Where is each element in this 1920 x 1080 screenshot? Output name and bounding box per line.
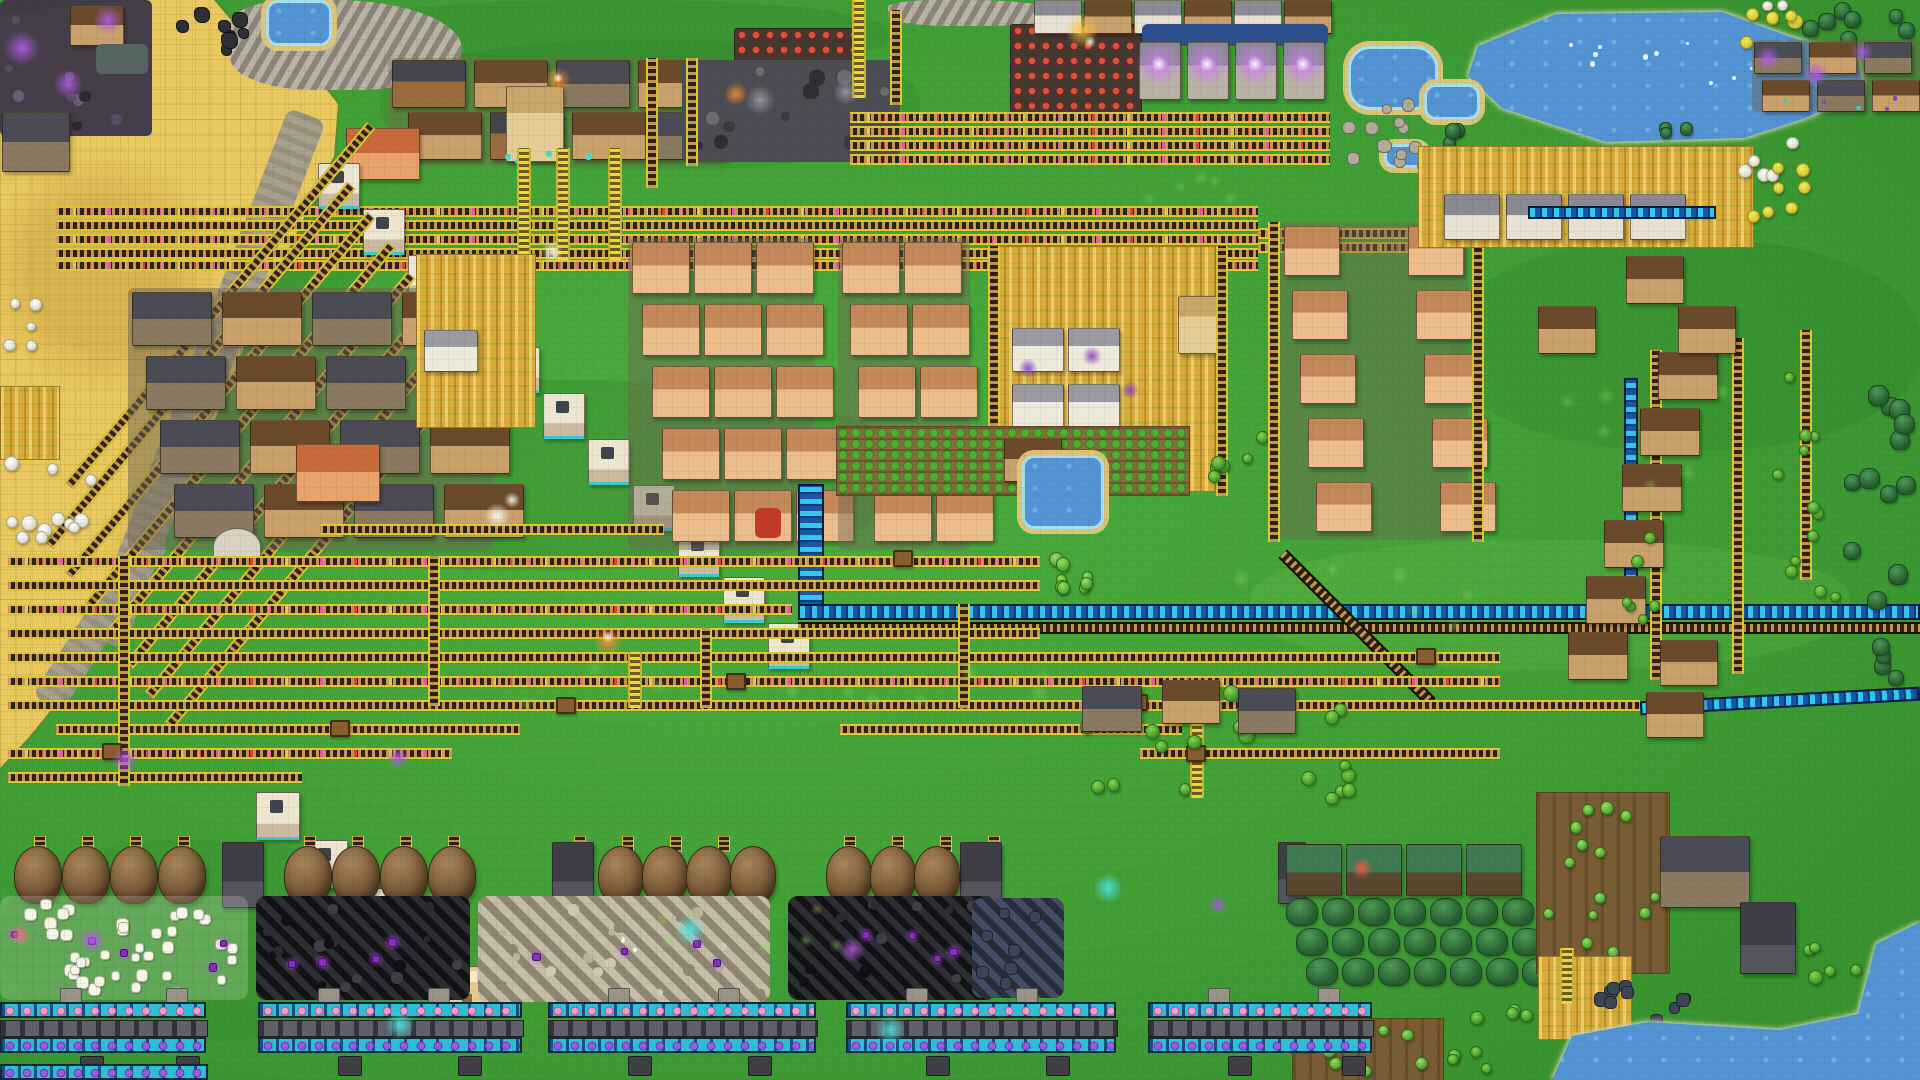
machine[interactable] <box>926 1056 950 1076</box>
tree <box>1056 557 1070 571</box>
tree <box>1450 958 1482 986</box>
house[interactable] <box>642 304 700 356</box>
house[interactable] <box>704 304 762 356</box>
house[interactable] <box>1646 692 1704 738</box>
terrain <box>837 70 851 84</box>
conveyor-belt[interactable] <box>958 604 970 708</box>
conveyor-belt[interactable] <box>517 148 531 260</box>
house[interactable] <box>850 304 908 356</box>
resource-node <box>981 930 993 942</box>
terrain <box>452 960 462 970</box>
house[interactable] <box>1300 354 1356 404</box>
conveyor-belt[interactable] <box>8 748 452 759</box>
tree <box>1798 181 1811 194</box>
item-conveyor[interactable] <box>0 1064 208 1080</box>
storage-building[interactable] <box>543 393 585 439</box>
tree <box>1445 123 1461 139</box>
resource-node <box>227 943 238 954</box>
machine[interactable] <box>338 1056 362 1076</box>
terrain <box>546 151 552 157</box>
house[interactable] <box>132 292 212 346</box>
tree <box>1762 1 1773 12</box>
tree <box>1242 453 1253 464</box>
terrain <box>614 922 624 932</box>
conveyor-belt[interactable] <box>1472 222 1484 542</box>
conveyor-belt[interactable] <box>628 652 642 708</box>
machine[interactable] <box>0 1020 208 1037</box>
chest[interactable] <box>893 550 913 567</box>
terrain <box>784 684 800 700</box>
conveyor-belt[interactable] <box>8 772 302 783</box>
resource-node <box>934 955 941 962</box>
tree <box>1639 907 1651 919</box>
terrain <box>1029 683 1051 705</box>
house[interactable] <box>1416 290 1472 340</box>
house[interactable] <box>312 292 392 346</box>
tree <box>1859 468 1880 489</box>
tree <box>29 298 42 311</box>
terrain <box>836 914 844 922</box>
tree <box>1777 0 1788 11</box>
vfx <box>1093 873 1123 903</box>
tree <box>1520 1009 1534 1023</box>
terrain <box>1714 383 1731 400</box>
tree <box>1502 898 1534 926</box>
pond <box>266 0 332 46</box>
forester-building[interactable] <box>1286 844 1342 896</box>
resource-node <box>209 963 217 971</box>
resource-node <box>388 938 397 947</box>
house[interactable] <box>632 242 690 294</box>
house[interactable] <box>236 356 316 410</box>
vfx <box>1569 43 1573 47</box>
terrain <box>1856 106 1860 110</box>
conveyor-belt[interactable] <box>8 652 1500 663</box>
terrain <box>842 685 858 701</box>
silo[interactable] <box>1178 296 1220 354</box>
house[interactable] <box>766 304 824 356</box>
terrain <box>876 933 887 944</box>
house[interactable] <box>1864 42 1912 74</box>
house[interactable] <box>1762 80 1810 112</box>
house[interactable] <box>1640 408 1700 456</box>
house[interactable] <box>1068 384 1120 428</box>
terrain <box>952 974 961 983</box>
terrain <box>1885 107 1889 111</box>
tree <box>1766 11 1780 25</box>
tree <box>1786 137 1798 149</box>
terrain <box>757 989 765 997</box>
conveyor-belt[interactable] <box>850 126 1330 137</box>
house[interactable] <box>1084 0 1132 34</box>
conveyor-belt[interactable] <box>700 628 712 708</box>
conveyor-belt[interactable] <box>8 700 1640 711</box>
terrain <box>859 966 871 978</box>
house[interactable] <box>874 490 932 542</box>
workshop[interactable] <box>296 444 380 502</box>
resource-node <box>1029 911 1041 923</box>
conveyor-belt[interactable] <box>428 556 440 706</box>
forester-building[interactable] <box>1406 844 1462 896</box>
item-conveyor[interactable] <box>846 1002 1116 1018</box>
tree <box>1772 469 1783 480</box>
fluid-pipe[interactable] <box>798 484 824 614</box>
item-conveyor[interactable] <box>258 1002 522 1018</box>
terrain <box>1208 175 1221 188</box>
tree <box>47 463 59 475</box>
resource-node <box>949 948 957 956</box>
terrain <box>714 135 728 149</box>
house[interactable] <box>424 330 478 372</box>
terrain <box>756 67 764 75</box>
conveyor-belt[interactable] <box>890 10 902 105</box>
machine[interactable] <box>458 1056 482 1076</box>
conveyor-belt[interactable] <box>608 148 622 260</box>
tree <box>1807 530 1819 542</box>
tree <box>1447 1054 1459 1066</box>
resource-node <box>11 931 18 938</box>
magic-temple[interactable] <box>1139 42 1181 100</box>
chest[interactable] <box>102 743 122 760</box>
house[interactable] <box>1754 42 1802 74</box>
forester-building[interactable] <box>1466 844 1522 896</box>
terrain <box>683 964 695 976</box>
conveyor-belt[interactable] <box>850 140 1330 151</box>
tree <box>1470 1011 1484 1025</box>
house[interactable] <box>724 428 782 480</box>
terrain <box>1595 423 1612 440</box>
house[interactable] <box>904 242 962 294</box>
terrain <box>810 903 823 916</box>
tree <box>1582 804 1593 815</box>
terrain <box>5 65 13 73</box>
terrain <box>803 83 819 99</box>
terrain <box>1390 566 1408 584</box>
lake <box>1552 920 1920 1080</box>
conveyor-belt[interactable] <box>8 556 1040 567</box>
forester-building[interactable] <box>1346 844 1402 896</box>
machine[interactable] <box>1342 1056 1366 1076</box>
resource-node <box>999 908 1009 918</box>
house[interactable] <box>70 6 124 46</box>
terrain <box>65 72 74 81</box>
house[interactable] <box>556 60 630 108</box>
house[interactable] <box>842 242 900 294</box>
lake-channel <box>1424 84 1480 120</box>
red-building <box>755 508 781 538</box>
lake-area <box>1552 920 1920 1080</box>
conveyor-belt[interactable] <box>1732 338 1744 674</box>
tree <box>1414 958 1446 986</box>
house[interactable] <box>1658 352 1718 400</box>
resource-node <box>1347 152 1359 164</box>
house[interactable] <box>912 304 970 356</box>
tree <box>10 298 21 309</box>
wheat-field <box>0 386 60 460</box>
resource-node <box>46 928 59 941</box>
tree <box>1476 928 1508 956</box>
house[interactable] <box>714 366 772 418</box>
conveyor-belt[interactable] <box>852 0 866 98</box>
resource-node <box>232 12 248 28</box>
house[interactable] <box>1626 256 1684 304</box>
resource-node <box>693 940 701 948</box>
terrain <box>79 91 90 102</box>
machine[interactable] <box>846 1020 1118 1037</box>
resource-node <box>111 971 121 981</box>
tree <box>1301 771 1316 786</box>
terrain <box>518 696 534 712</box>
machine[interactable] <box>1046 1056 1070 1076</box>
resource-node <box>100 950 110 960</box>
conveyor-belt[interactable] <box>8 628 1040 639</box>
terrain <box>605 958 616 969</box>
tree <box>1888 564 1909 585</box>
terrain <box>805 964 814 973</box>
item-conveyor[interactable] <box>1148 1037 1372 1053</box>
tree <box>1155 740 1168 753</box>
tree <box>1481 1063 1492 1074</box>
conveyor-belt[interactable] <box>56 206 1258 217</box>
chest[interactable] <box>556 697 576 714</box>
terrain <box>1174 180 1187 193</box>
terrain <box>1893 96 1897 100</box>
terrain <box>394 960 406 972</box>
tree <box>1888 670 1904 686</box>
resource-node <box>1396 149 1407 160</box>
resource-node <box>1008 944 1021 957</box>
resource-node <box>238 28 249 39</box>
house[interactable] <box>858 366 916 418</box>
house[interactable] <box>1034 0 1082 34</box>
house[interactable] <box>1809 42 1857 74</box>
conveyor-belt[interactable] <box>686 58 698 166</box>
tree <box>1470 1046 1482 1058</box>
terrain <box>912 692 929 709</box>
magic-temple[interactable] <box>1235 42 1277 100</box>
resource-node <box>1382 104 1392 114</box>
tree <box>1325 710 1339 724</box>
house[interactable] <box>672 490 730 542</box>
magic-temple[interactable] <box>1187 42 1229 100</box>
house[interactable] <box>1440 482 1496 532</box>
item-conveyor[interactable] <box>846 1037 1116 1053</box>
house[interactable] <box>1012 384 1064 428</box>
resource-node <box>1004 962 1018 976</box>
chest[interactable] <box>330 720 350 737</box>
resource-node <box>217 975 226 984</box>
item-conveyor[interactable] <box>258 1037 522 1053</box>
item-conveyor[interactable] <box>548 1037 816 1053</box>
house[interactable] <box>1444 194 1500 240</box>
house[interactable] <box>1068 328 1120 372</box>
terrain <box>324 939 334 949</box>
house[interactable] <box>1082 686 1142 732</box>
tree <box>1894 414 1915 435</box>
resource-node <box>162 971 172 981</box>
conveyor-belt[interactable] <box>8 676 1500 687</box>
house[interactable] <box>1284 226 1340 276</box>
conveyor-belt[interactable] <box>8 580 1040 591</box>
tree <box>16 531 29 544</box>
vfx <box>1654 51 1659 56</box>
house[interactable] <box>1316 482 1372 532</box>
tree <box>1306 958 1338 986</box>
resource-node <box>131 953 140 962</box>
house[interactable] <box>1238 688 1296 734</box>
coal-field <box>256 896 470 1000</box>
resource-node <box>713 959 721 967</box>
resource-node <box>193 909 204 920</box>
tree <box>1594 847 1605 858</box>
brazier-field <box>1010 24 1142 114</box>
tree <box>1796 163 1810 177</box>
tree <box>1404 928 1436 956</box>
resource-node <box>1402 98 1416 112</box>
house[interactable] <box>1162 680 1220 724</box>
terrain <box>593 967 604 978</box>
terrain <box>1223 191 1238 206</box>
resource-node <box>288 960 296 968</box>
machine[interactable] <box>1148 1020 1374 1037</box>
machine[interactable] <box>628 1056 652 1076</box>
vfx <box>1590 61 1596 67</box>
house[interactable] <box>1308 418 1364 468</box>
tree <box>1868 385 1889 406</box>
tree <box>1378 958 1410 986</box>
tree <box>1564 857 1575 868</box>
house[interactable] <box>1012 328 1064 372</box>
house[interactable] <box>1678 306 1736 354</box>
house[interactable] <box>776 366 834 418</box>
house[interactable] <box>662 428 720 480</box>
resource-node <box>372 955 381 964</box>
house[interactable] <box>694 242 752 294</box>
resource-node <box>136 969 149 982</box>
house[interactable] <box>1568 632 1628 680</box>
house[interactable] <box>160 420 240 474</box>
house[interactable] <box>1660 836 1750 908</box>
house[interactable] <box>920 366 978 418</box>
tree <box>1898 22 1915 39</box>
house[interactable] <box>146 356 226 410</box>
resource-node <box>40 899 51 910</box>
resource-node <box>220 940 227 947</box>
item-conveyor[interactable] <box>0 1037 206 1053</box>
terrain <box>706 112 719 125</box>
tree <box>1057 581 1070 594</box>
vfx <box>1593 52 1597 56</box>
machine[interactable] <box>258 1020 524 1037</box>
house[interactable] <box>1538 306 1596 354</box>
terrain <box>912 902 922 912</box>
game-viewport[interactable] <box>0 0 1920 1080</box>
terrain <box>719 943 726 950</box>
tree <box>26 322 35 331</box>
house[interactable] <box>222 292 302 346</box>
chest[interactable] <box>1416 648 1436 665</box>
storage-building[interactable] <box>588 439 630 485</box>
conveyor-belt[interactable] <box>56 220 1258 231</box>
resource-node <box>135 943 144 952</box>
magic-temple[interactable] <box>1283 42 1325 100</box>
machine[interactable] <box>748 1056 772 1076</box>
item-conveyor[interactable] <box>1148 1002 1372 1018</box>
tree <box>1486 958 1518 986</box>
terrain <box>12 16 20 24</box>
tree <box>1660 127 1672 139</box>
terrain <box>1143 192 1157 206</box>
conveyor-belt[interactable] <box>320 524 664 535</box>
house[interactable] <box>1292 290 1348 340</box>
tree <box>1342 783 1356 797</box>
tree <box>1296 928 1328 956</box>
house[interactable] <box>326 356 406 410</box>
house[interactable] <box>756 242 814 294</box>
tree <box>1843 542 1862 561</box>
conveyor-belt[interactable] <box>1268 222 1280 542</box>
resource-node <box>318 958 327 967</box>
terrain <box>274 946 283 955</box>
resource-node <box>1377 139 1392 154</box>
house[interactable] <box>936 490 994 542</box>
terrain <box>505 154 511 160</box>
resource-node <box>94 976 105 987</box>
terrain <box>340 982 351 993</box>
machine[interactable] <box>548 1020 818 1037</box>
terrain <box>799 977 809 987</box>
tree <box>1342 958 1374 986</box>
chest[interactable] <box>726 673 746 690</box>
conveyor-belt[interactable] <box>850 154 1330 165</box>
tree <box>1187 735 1202 750</box>
terrain <box>546 966 556 976</box>
workshop[interactable] <box>392 60 466 108</box>
tree <box>1649 600 1660 611</box>
terrain <box>781 112 790 121</box>
conveyor-belt[interactable] <box>850 112 1330 123</box>
resource-node <box>167 926 177 936</box>
tree <box>1368 928 1400 956</box>
house[interactable] <box>1586 576 1646 624</box>
conveyor-belt[interactable] <box>556 148 570 260</box>
house[interactable] <box>1660 640 1718 686</box>
tree <box>1091 780 1105 794</box>
item-conveyor[interactable] <box>0 1002 206 1018</box>
tree <box>1638 614 1648 624</box>
tree <box>1872 638 1890 656</box>
resource-node <box>909 932 917 940</box>
terrain <box>1784 99 1787 102</box>
terrain <box>1822 100 1826 104</box>
conveyor-belt[interactable] <box>646 58 658 188</box>
crystal-field <box>0 896 248 1000</box>
resource-node <box>532 953 541 962</box>
storage-building[interactable] <box>256 792 300 840</box>
terrain <box>1678 463 1697 482</box>
tree <box>1622 597 1633 608</box>
house[interactable] <box>652 366 710 418</box>
house[interactable] <box>2 112 70 172</box>
item-conveyor[interactable] <box>548 1002 816 1018</box>
terrain <box>111 114 122 125</box>
house[interactable] <box>430 420 510 474</box>
pipe[interactable] <box>1528 206 1716 219</box>
terrain <box>67 93 76 102</box>
resource-node <box>1394 117 1405 128</box>
machine[interactable] <box>1228 1056 1252 1076</box>
terrain <box>650 677 666 693</box>
